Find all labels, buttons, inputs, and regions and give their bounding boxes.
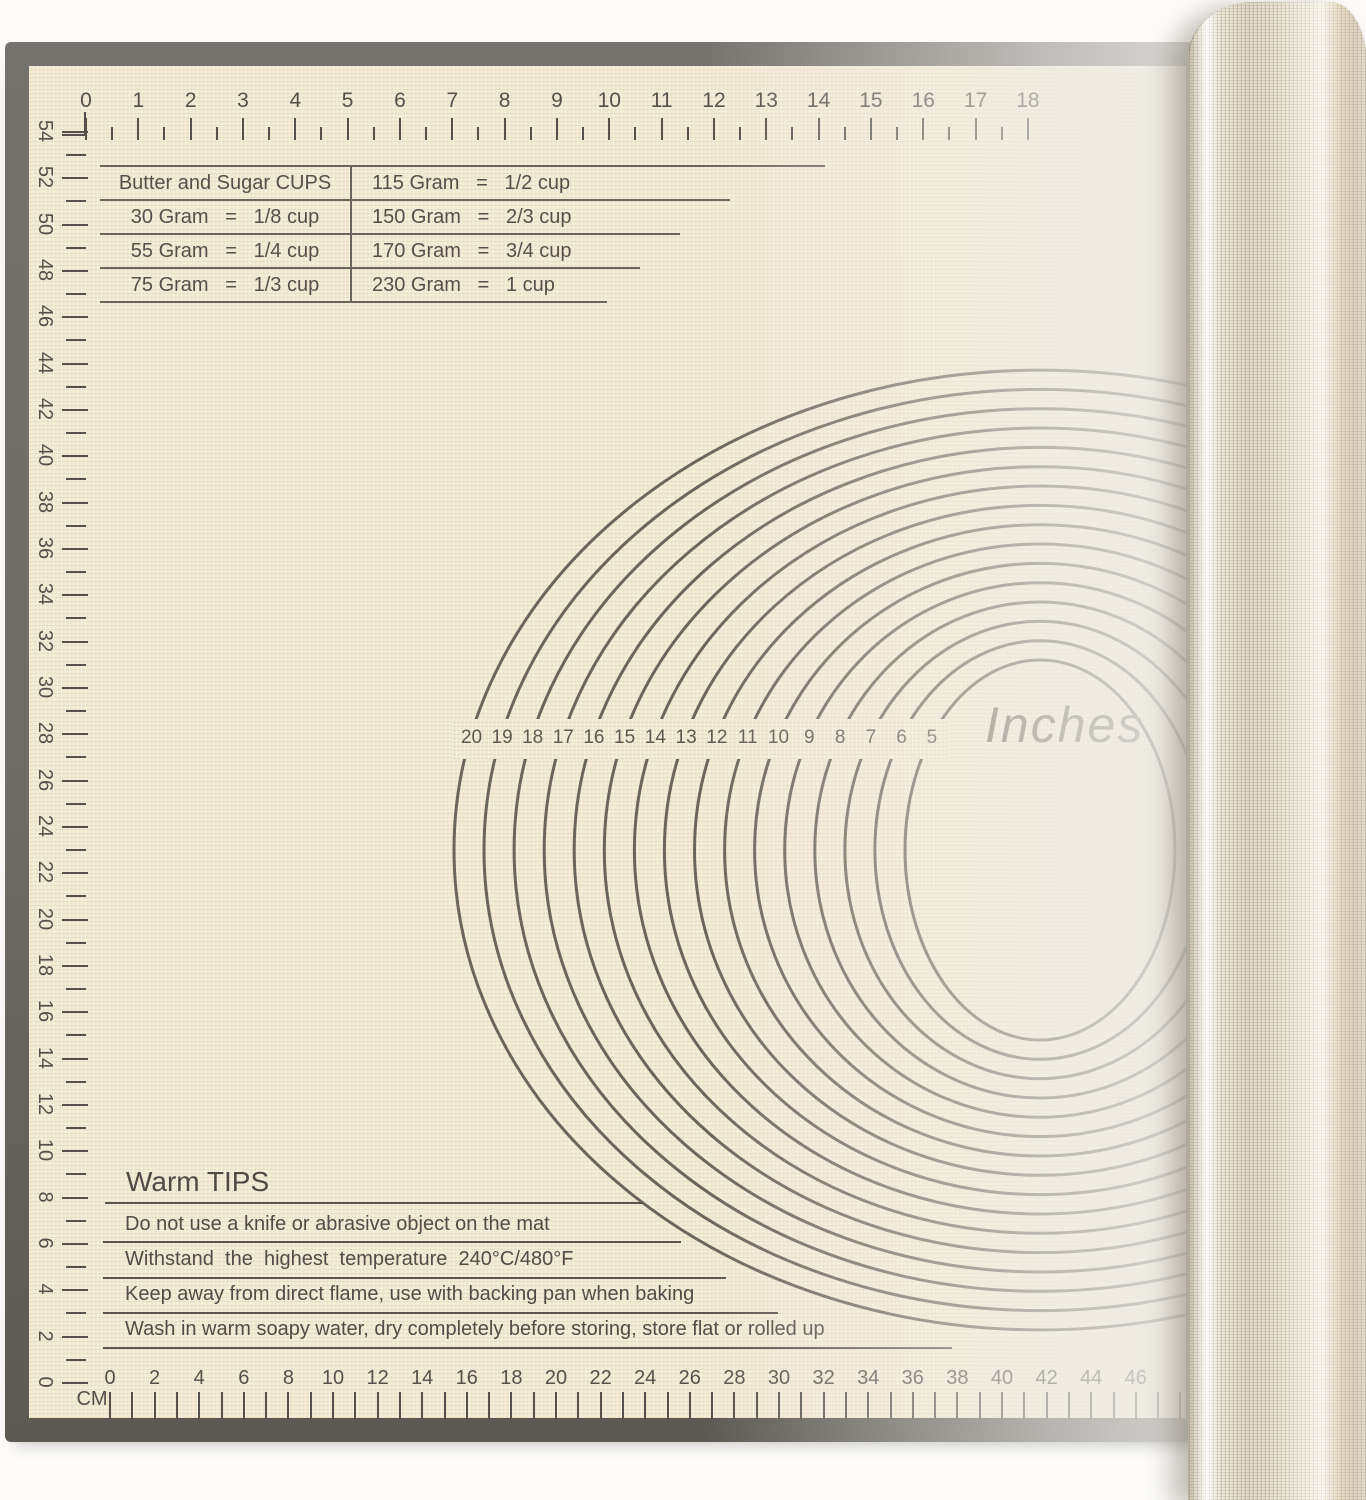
bottom-ruler-tick (265, 1392, 267, 1420)
left-ruler-tick (62, 1150, 88, 1152)
circle-diameter-label: 10 (763, 728, 793, 747)
bottom-ruler-tick (533, 1392, 535, 1420)
bottom-ruler-tick (1068, 1392, 1070, 1420)
left-ruler-tick (66, 895, 86, 897)
table-header-cell: Butter and Sugar CUPS (100, 173, 350, 193)
circle-diameter-label: 14 (640, 728, 670, 747)
top-ruler-tick (661, 118, 663, 140)
left-ruler-tick (66, 1034, 86, 1036)
top-ruler-number: 14 (803, 90, 835, 111)
circle-diameter-label: 20 (457, 728, 487, 747)
left-ruler-tick (66, 1266, 86, 1268)
warm-tip-underline (103, 1347, 952, 1349)
left-ruler-tick (62, 177, 88, 179)
warm-tips-title-underline (105, 1202, 643, 1204)
left-ruler-tick (62, 687, 88, 689)
top-ruler-number: 2 (175, 90, 207, 111)
top-ruler-number: 1 (122, 90, 154, 111)
bottom-ruler-tick (733, 1392, 735, 1420)
left-ruler-number: 28 (35, 716, 55, 750)
top-ruler-tick (739, 127, 741, 140)
left-ruler-number: 32 (35, 624, 55, 658)
bottom-ruler-number: 30 (761, 1368, 797, 1388)
circle-diameter-label: 16 (579, 728, 609, 747)
top-ruler-tick (268, 127, 270, 140)
left-ruler-number: 12 (35, 1087, 55, 1121)
ruler-corner-bracket-h (62, 134, 85, 136)
bottom-ruler-tick (1090, 1392, 1092, 1420)
bottom-ruler-number: 20 (538, 1368, 574, 1388)
bottom-ruler-tick (488, 1392, 490, 1420)
bottom-ruler-tick (689, 1392, 691, 1420)
bottom-ruler-tick (600, 1392, 602, 1420)
bottom-ruler-tick (934, 1392, 936, 1420)
left-ruler-number: 22 (35, 855, 55, 889)
bottom-ruler-tick (577, 1392, 579, 1420)
left-ruler-tick (66, 1220, 86, 1222)
bottom-ruler-tick (1023, 1392, 1025, 1420)
circle-diameter-label: 18 (518, 728, 548, 747)
top-ruler-number: 17 (960, 90, 992, 111)
left-ruler-number: 10 (35, 1133, 55, 1167)
top-ruler-tick (373, 127, 375, 140)
top-ruler-tick (347, 118, 349, 140)
left-ruler-tick (66, 1173, 86, 1175)
left-ruler-tick (66, 478, 86, 480)
circle-diameter-label: 5 (917, 728, 947, 747)
bottom-ruler-number: 0 (92, 1368, 128, 1388)
bottom-ruler-number: 10 (315, 1368, 351, 1388)
left-ruler-number: 44 (35, 346, 55, 380)
top-ruler-number: 3 (227, 90, 259, 111)
top-ruler-tick (216, 127, 218, 140)
top-ruler-tick (975, 118, 977, 140)
top-ruler-number: 6 (384, 90, 416, 111)
bottom-ruler-tick (956, 1392, 958, 1420)
left-ruler-tick (66, 756, 86, 758)
top-ruler-tick (687, 127, 689, 140)
left-ruler-tick (62, 1104, 88, 1106)
bottom-ruler-tick (399, 1392, 401, 1420)
circle-diameter-label: 15 (610, 728, 640, 747)
left-ruler-tick (66, 339, 86, 341)
warm-tip-underline (103, 1277, 726, 1279)
bottom-ruler-tick (466, 1392, 468, 1420)
top-ruler-tick (451, 118, 453, 140)
top-ruler-tick (896, 127, 898, 140)
bottom-ruler-tick (778, 1392, 780, 1420)
bottom-ruler-tick (154, 1392, 156, 1420)
top-ruler-number: 8 (489, 90, 521, 111)
left-ruler-number: 24 (35, 809, 55, 843)
table-row-line (100, 233, 680, 235)
top-ruler-number: 0 (70, 90, 102, 111)
left-ruler-tick (62, 270, 88, 272)
left-ruler-number: 2 (35, 1319, 55, 1353)
bottom-ruler-tick (131, 1392, 133, 1420)
left-ruler-tick (62, 1289, 88, 1291)
left-ruler-tick (62, 594, 88, 596)
bottom-ruler-tick (421, 1392, 423, 1420)
bottom-ruler-number: 8 (270, 1368, 306, 1388)
table-cell: 55 Gram = 1/4 cup (100, 241, 350, 261)
left-ruler-number: 34 (35, 577, 55, 611)
bottom-ruler-number: 2 (137, 1368, 173, 1388)
top-ruler-number: 13 (750, 90, 782, 111)
top-ruler-tick (530, 127, 532, 140)
left-ruler-number: 54 (35, 114, 55, 148)
left-ruler-tick (66, 386, 86, 388)
top-ruler-tick (1027, 118, 1029, 140)
left-ruler-tick (66, 200, 86, 202)
bottom-ruler-number: 12 (360, 1368, 396, 1388)
left-ruler-number: 46 (35, 299, 55, 333)
left-ruler-number: 26 (35, 763, 55, 797)
top-ruler-number: 15 (855, 90, 887, 111)
left-ruler-tick (66, 988, 86, 990)
bottom-ruler-number: 28 (716, 1368, 752, 1388)
circle-diameter-label: 19 (487, 728, 517, 747)
bottom-ruler-tick (1135, 1392, 1137, 1420)
circle-diameter-label: 7 (856, 728, 886, 747)
bottom-ruler-tick (1113, 1392, 1115, 1420)
left-ruler-tick (62, 363, 88, 365)
left-ruler-tick (62, 455, 88, 457)
bottom-ruler-number: 26 (672, 1368, 708, 1388)
bottom-ruler-number: 32 (806, 1368, 842, 1388)
left-ruler-tick (62, 965, 88, 967)
left-ruler-tick (62, 1382, 88, 1384)
bottom-ruler-tick (198, 1392, 200, 1420)
top-ruler-tick (504, 118, 506, 140)
bottom-ruler-number: 6 (226, 1368, 262, 1388)
left-ruler-tick (66, 803, 86, 805)
bottom-ruler-tick (310, 1392, 312, 1420)
top-ruler-number: 18 (1012, 90, 1044, 111)
bottom-ruler-tick (377, 1392, 379, 1420)
top-ruler-tick (608, 118, 610, 140)
bottom-ruler-tick (1157, 1392, 1159, 1420)
circle-diameter-label: 11 (733, 728, 763, 747)
warm-tip-text: Wash in warm soapy water, dry completely… (125, 1319, 825, 1339)
bottom-ruler-tick (867, 1392, 869, 1420)
bottom-ruler-number: 24 (627, 1368, 663, 1388)
bottom-ruler-tick (912, 1392, 914, 1420)
bottom-ruler-number: 16 (449, 1368, 485, 1388)
table-cell: 115 Gram = 1/2 cup (372, 173, 570, 193)
bottom-ruler-number: 34 (850, 1368, 886, 1388)
bottom-ruler-tick (332, 1392, 334, 1420)
circle-diameter-label: 17 (548, 728, 578, 747)
bottom-ruler-tick (555, 1392, 557, 1420)
top-ruler-tick (320, 127, 322, 140)
bottom-ruler-tick (644, 1392, 646, 1420)
top-ruler-tick (111, 127, 113, 140)
bottom-ruler-number: 14 (404, 1368, 440, 1388)
left-ruler-tick (62, 641, 88, 643)
left-ruler-tick (62, 316, 88, 318)
table-row-line (100, 165, 825, 167)
top-ruler-tick (477, 127, 479, 140)
bottom-ruler-tick (243, 1392, 245, 1420)
bottom-ruler-number: 22 (583, 1368, 619, 1388)
table-cell: 230 Gram = 1 cup (372, 275, 555, 295)
top-ruler-tick (922, 118, 924, 140)
left-ruler-tick (66, 525, 86, 527)
top-ruler-number: 10 (593, 90, 625, 111)
bottom-ruler-tick (221, 1392, 223, 1420)
bottom-ruler-number: 42 (1029, 1368, 1065, 1388)
cm-unit-label: CM (70, 1389, 114, 1409)
table-cell: 170 Gram = 3/4 cup (372, 241, 572, 261)
top-ruler-tick (844, 127, 846, 140)
bottom-ruler-tick (354, 1392, 356, 1420)
left-ruler-number: 42 (35, 392, 55, 426)
top-ruler-tick (765, 118, 767, 140)
top-ruler-tick (634, 127, 636, 140)
bottom-ruler-number: 36 (895, 1368, 931, 1388)
bottom-ruler-number: 40 (984, 1368, 1020, 1388)
circle-diameter-label: 8 (825, 728, 855, 747)
left-ruler-number: 8 (35, 1180, 55, 1214)
top-ruler-number: 11 (646, 90, 678, 111)
bottom-ruler-tick (890, 1392, 892, 1420)
left-ruler-tick (66, 247, 86, 249)
left-ruler-tick (66, 1312, 86, 1314)
left-ruler-tick (66, 571, 86, 573)
top-ruler-tick (713, 118, 715, 140)
top-ruler-number: 4 (279, 90, 311, 111)
left-ruler-number: 18 (35, 948, 55, 982)
circle-diameter-label: 12 (702, 728, 732, 747)
table-cell: 150 Gram = 2/3 cup (372, 207, 572, 227)
left-ruler-number: 48 (35, 253, 55, 287)
left-ruler-tick (62, 224, 88, 226)
left-ruler-tick (62, 1243, 88, 1245)
left-ruler-tick (62, 1058, 88, 1060)
top-ruler-tick (1001, 127, 1003, 140)
rolled-mat-edge (1188, 2, 1366, 1500)
top-ruler-number: 7 (436, 90, 468, 111)
bottom-ruler-tick (176, 1392, 178, 1420)
left-ruler-tick (62, 780, 88, 782)
left-ruler-tick (66, 432, 86, 434)
left-ruler-tick (62, 1011, 88, 1013)
left-ruler-tick (62, 1197, 88, 1199)
bottom-ruler-tick (667, 1392, 669, 1420)
left-ruler-number: 50 (35, 207, 55, 241)
table-cell: 30 Gram = 1/8 cup (100, 207, 350, 227)
left-ruler-tick (62, 872, 88, 874)
top-ruler-number: 12 (698, 90, 730, 111)
bottom-ruler-tick (711, 1392, 713, 1420)
left-ruler-tick (62, 1336, 88, 1338)
left-ruler-tick (62, 502, 88, 504)
left-ruler-tick (66, 1127, 86, 1129)
left-ruler-number: 16 (35, 994, 55, 1028)
top-ruler-number: 16 (907, 90, 939, 111)
left-ruler-tick (62, 826, 88, 828)
left-ruler-number: 6 (35, 1226, 55, 1260)
top-ruler-tick (163, 127, 165, 140)
warm-tip-text: Do not use a knife or abrasive object on… (125, 1214, 550, 1234)
left-ruler-tick (62, 733, 88, 735)
warm-tip-underline (103, 1241, 681, 1243)
top-ruler-tick (137, 118, 139, 140)
bottom-ruler-number: 46 (1118, 1368, 1154, 1388)
left-ruler-tick (66, 849, 86, 851)
top-ruler-tick (399, 118, 401, 140)
left-ruler-number: 4 (35, 1272, 55, 1306)
bottom-ruler-tick (287, 1392, 289, 1420)
bottom-ruler-number: 44 (1073, 1368, 1109, 1388)
bottom-ruler-tick (622, 1392, 624, 1420)
bottom-ruler-tick (979, 1392, 981, 1420)
left-ruler-tick (66, 664, 86, 666)
bottom-ruler-number: 38 (939, 1368, 975, 1388)
top-ruler-number: 5 (332, 90, 364, 111)
left-ruler-number: 30 (35, 670, 55, 704)
top-ruler-tick (582, 127, 584, 140)
warm-tip-underline (103, 1312, 778, 1314)
left-ruler-tick (62, 409, 88, 411)
left-ruler-number: 0 (35, 1365, 55, 1399)
left-ruler-number: 40 (35, 438, 55, 472)
left-ruler-tick (66, 710, 86, 712)
left-ruler-number: 20 (35, 902, 55, 936)
left-ruler-number: 38 (35, 485, 55, 519)
bottom-ruler-number: 4 (181, 1368, 217, 1388)
left-ruler-tick (62, 548, 88, 550)
bottom-ruler-tick (800, 1392, 802, 1420)
left-ruler-number: 36 (35, 531, 55, 565)
top-ruler-tick (190, 118, 192, 140)
table-cell: 75 Gram = 1/3 cup (100, 275, 350, 295)
warm-tips-title: Warm TIPS (126, 1168, 269, 1196)
warm-tip-text: Keep away from direct flame, use with ba… (125, 1284, 694, 1304)
top-ruler-tick (791, 127, 793, 140)
top-ruler-tick (818, 118, 820, 140)
table-row-line (100, 301, 607, 303)
circle-diameter-label: 6 (887, 728, 917, 747)
table-row-line (100, 199, 730, 201)
top-ruler-tick (294, 118, 296, 140)
left-ruler-tick (66, 293, 86, 295)
bottom-ruler-tick (1179, 1392, 1181, 1420)
bottom-ruler-number: 18 (493, 1368, 529, 1388)
bottom-ruler-tick (823, 1392, 825, 1420)
top-ruler-tick (242, 118, 244, 140)
table-column-divider (350, 165, 352, 301)
top-ruler-tick (556, 118, 558, 140)
left-ruler-tick (62, 131, 88, 133)
top-ruler-number: 9 (541, 90, 573, 111)
top-ruler-tick (425, 127, 427, 140)
bottom-ruler-tick (444, 1392, 446, 1420)
left-ruler-tick (66, 942, 86, 944)
circle-diameter-label: 13 (671, 728, 701, 747)
bottom-ruler-tick (510, 1392, 512, 1420)
left-ruler-tick (66, 1081, 86, 1083)
bottom-ruler-tick (1046, 1392, 1048, 1420)
left-ruler-number: 52 (35, 160, 55, 194)
left-ruler-tick (66, 617, 86, 619)
left-ruler-tick (62, 919, 88, 921)
bottom-ruler-tick (1001, 1392, 1003, 1420)
warm-tip-text: Withstand the highest temperature 240°C/… (125, 1249, 573, 1269)
product-photo-stage: 201918171615141312111098765 Inches 01234… (0, 0, 1366, 1500)
bottom-ruler-tick (756, 1392, 758, 1420)
table-row-line (100, 267, 640, 269)
left-ruler-number: 14 (35, 1041, 55, 1075)
left-ruler-tick (66, 154, 86, 156)
circle-diameter-label: 9 (794, 728, 824, 747)
top-ruler-tick (870, 118, 872, 140)
inches-unit-label: Inches (985, 700, 1144, 750)
left-ruler-tick (66, 1359, 86, 1361)
bottom-ruler-tick (845, 1392, 847, 1420)
top-ruler-tick (948, 127, 950, 140)
